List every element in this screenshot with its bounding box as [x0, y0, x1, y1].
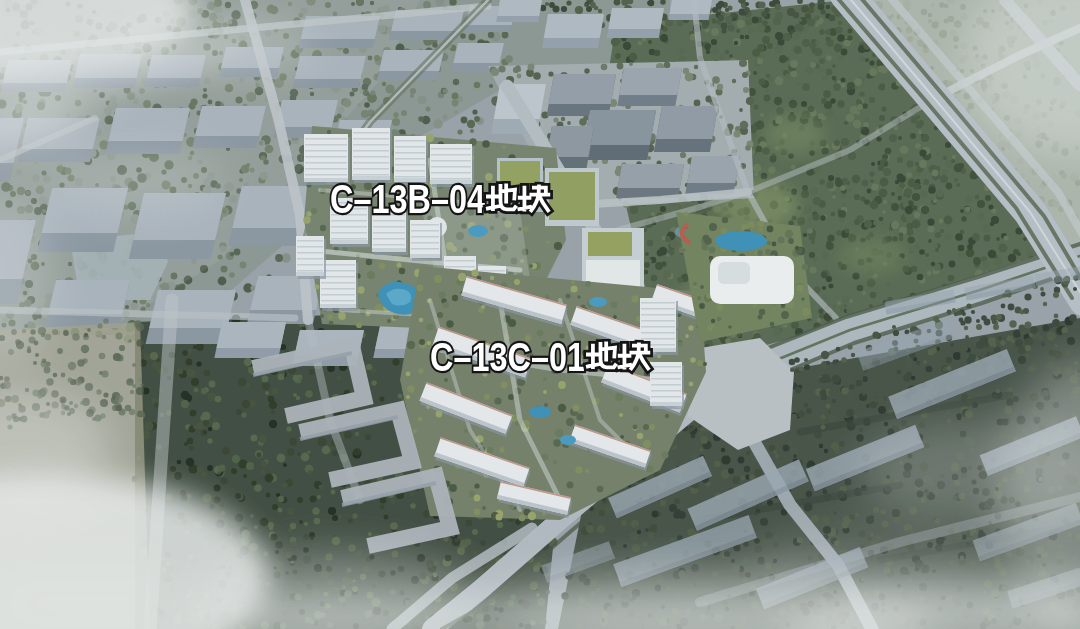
svg-text:C–13B–04: C–13B–04: [330, 176, 485, 222]
svg-text:C–13C–01: C–13C–01: [430, 334, 585, 380]
